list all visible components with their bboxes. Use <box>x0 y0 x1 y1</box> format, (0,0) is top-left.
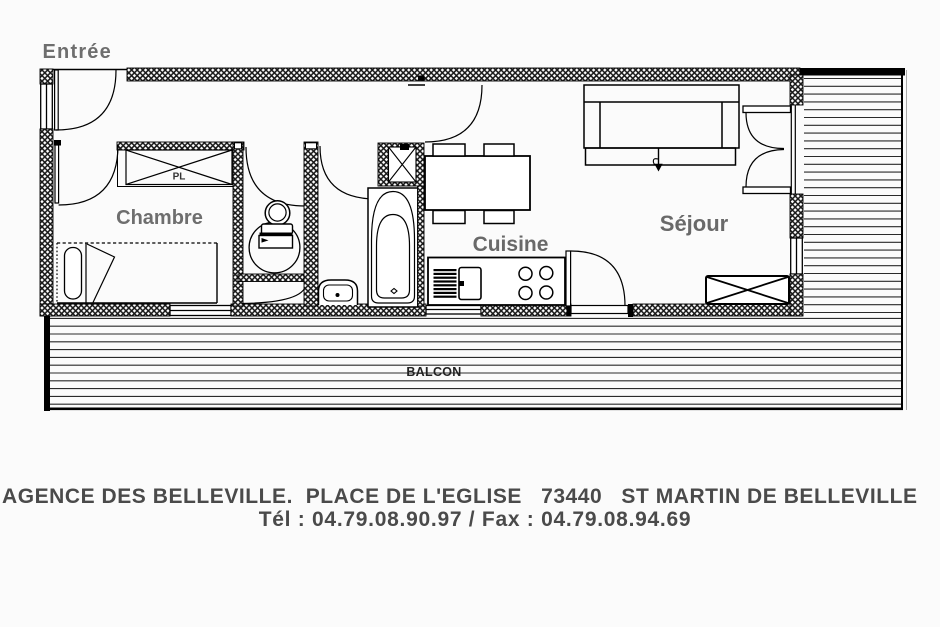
svg-text:Cuisine: Cuisine <box>473 233 549 256</box>
svg-text:Entrée: Entrée <box>43 41 112 63</box>
svg-text:Tél : 04.79.08.90.97 / Fax : 0: Tél : 04.79.08.90.97 / Fax : 04.79.08.94… <box>259 508 692 531</box>
svg-text:PL: PL <box>173 172 186 183</box>
svg-text:BALCON: BALCON <box>406 365 461 379</box>
svg-text:Séjour: Séjour <box>660 211 729 236</box>
svg-text:Chambre: Chambre <box>116 207 203 229</box>
svg-text:AGENCE DES BELLEVILLE. PLACE: AGENCE DES BELLEVILLE. PLACE DE L'EGLISE… <box>2 485 918 508</box>
